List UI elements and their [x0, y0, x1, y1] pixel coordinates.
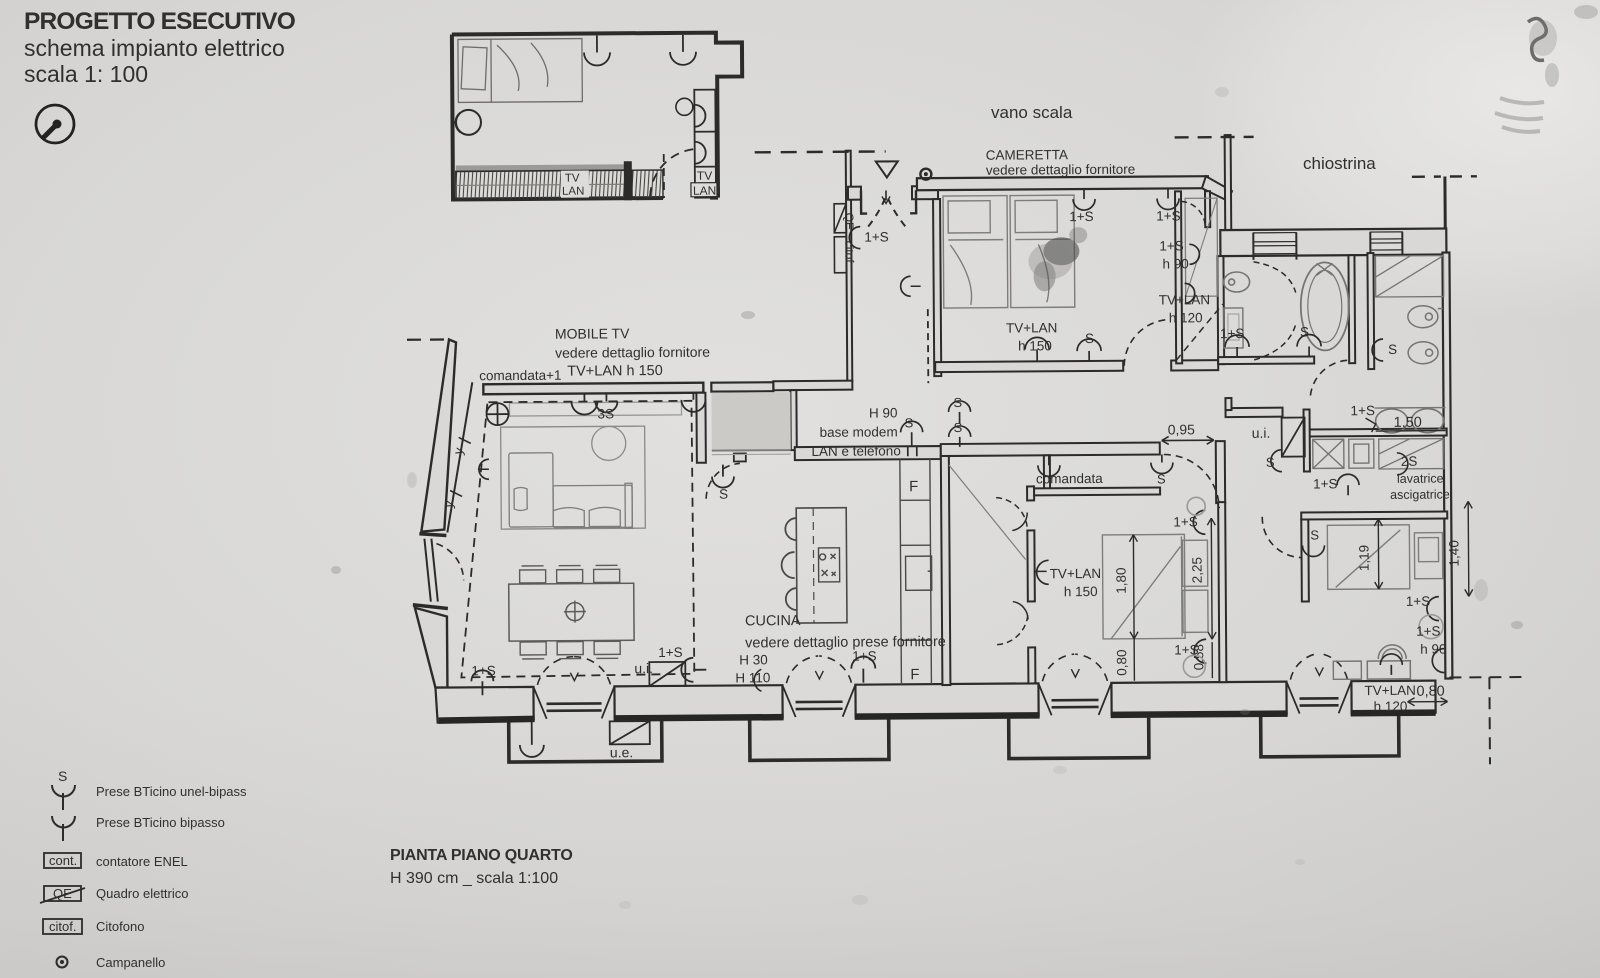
svg-text:u.e.: u.e.	[610, 744, 633, 760]
svg-text:H 390 cm _ scala 1:100: H 390 cm _ scala 1:100	[390, 870, 558, 887]
svg-text:1,50: 1,50	[1394, 415, 1422, 431]
svg-text:TV: TV	[565, 173, 580, 185]
svg-text:F: F	[909, 478, 918, 495]
svg-text:contatore ENEL: contatore ENEL	[96, 854, 188, 869]
svg-text:0,80: 0,80	[1416, 684, 1444, 700]
svg-text:1,19: 1,19	[1356, 545, 1371, 571]
svg-text:vedere dettaglio prese fornito: vedere dettaglio prese fornitore	[745, 634, 946, 651]
svg-text:h 90: h 90	[1162, 256, 1188, 271]
svg-text:S: S	[1266, 455, 1275, 470]
svg-text:PIANTA PIANO QUARTO: PIANTA PIANO QUARTO	[390, 847, 573, 864]
svg-text:h 120: h 120	[1374, 699, 1408, 714]
svg-text:3S: 3S	[597, 406, 614, 421]
svg-text:H 110: H 110	[735, 670, 770, 685]
svg-text:TV+LAN: TV+LAN	[1050, 566, 1102, 581]
svg-text:vedere dettaglio fornitore: vedere dettaglio fornitore	[555, 344, 710, 361]
svg-text:TV: TV	[697, 169, 712, 183]
svg-text:S: S	[1388, 342, 1397, 357]
svg-text:1+S: 1+S	[1159, 238, 1184, 253]
svg-text:1+S: 1+S	[1416, 624, 1441, 639]
svg-text:1,40: 1,40	[1446, 540, 1461, 566]
svg-text:2S: 2S	[1401, 454, 1418, 469]
svg-text:1+S: 1+S	[864, 229, 889, 244]
svg-text:S: S	[954, 420, 963, 435]
svg-text:1+S: 1+S	[1350, 403, 1375, 418]
svg-text:TV+LAN h 150: TV+LAN h 150	[567, 363, 663, 380]
svg-text:S: S	[1157, 471, 1166, 486]
svg-text:vano scala: vano scala	[991, 103, 1073, 122]
svg-text:S: S	[953, 395, 962, 410]
svg-text:S: S	[719, 487, 728, 502]
svg-text:h 120: h 120	[1169, 310, 1203, 325]
svg-text:h 150: h 150	[1064, 584, 1098, 599]
svg-text:CUCINA: CUCINA	[745, 613, 801, 629]
svg-text:S: S	[905, 415, 914, 430]
svg-text:cont.: cont.	[49, 853, 77, 868]
svg-text:h 150: h 150	[1018, 338, 1052, 353]
svg-text:1+S: 1+S	[1220, 326, 1245, 341]
svg-text:chiostrina: chiostrina	[1303, 154, 1376, 173]
svg-text:vedere dettaglio fornitore: vedere dettaglio fornitore	[986, 162, 1135, 178]
svg-text:citof.: citof.	[842, 241, 856, 266]
svg-text:Prese BTicino bipasso: Prese BTicino bipasso	[96, 815, 225, 830]
svg-text:TV+LAN: TV+LAN	[1364, 683, 1416, 698]
svg-text:S: S	[58, 768, 67, 784]
svg-text:schema impianto elettrico: schema impianto elettrico	[24, 35, 285, 61]
svg-text:base modem: base modem	[820, 424, 898, 440]
svg-text:PROGETTO ESECUTIVO: PROGETTO ESECUTIVO	[24, 8, 296, 35]
svg-text:0,95: 0,95	[1168, 421, 1196, 437]
svg-text:ascigatrice: ascigatrice	[1390, 488, 1450, 502]
svg-text:Quadro elettrico: Quadro elettrico	[96, 886, 189, 901]
svg-text:1+S: 1+S	[1156, 208, 1181, 223]
svg-text:1+S: 1+S	[1313, 476, 1338, 491]
svg-text:Prese BTicino unel-bipass: Prese BTicino unel-bipass	[96, 784, 247, 799]
svg-text:TV+LAN: TV+LAN	[1006, 320, 1058, 335]
svg-text:lavatrice: lavatrice	[1397, 472, 1444, 486]
svg-text:Citofono: Citofono	[96, 919, 144, 934]
svg-text:F: F	[910, 666, 919, 683]
svg-text:comandata+1: comandata+1	[479, 368, 561, 384]
svg-text:LAN: LAN	[562, 186, 584, 198]
svg-text:1+S: 1+S	[1069, 209, 1094, 224]
svg-text:H 90: H 90	[869, 405, 898, 420]
svg-text:0,80: 0,80	[1114, 649, 1129, 675]
svg-text:LAN: LAN	[693, 184, 716, 198]
svg-text:citof.: citof.	[49, 919, 76, 934]
svg-text:S: S	[1310, 527, 1319, 542]
svg-text:TV+LAN: TV+LAN	[1159, 292, 1211, 307]
svg-text:LAN e telefono: LAN e telefono	[811, 443, 900, 459]
svg-text:H 30: H 30	[739, 652, 768, 667]
svg-text:CAMERETTA: CAMERETTA	[986, 147, 1068, 163]
svg-text:1+S: 1+S	[658, 645, 683, 660]
svg-text:MOBILE TV: MOBILE TV	[555, 325, 630, 342]
svg-text:u.i.: u.i.	[1252, 425, 1271, 441]
svg-text:1,80: 1,80	[1114, 567, 1129, 593]
svg-text:scala 1: 100: scala 1: 100	[24, 61, 148, 87]
svg-text:comandata: comandata	[1036, 471, 1103, 486]
svg-text:Campanello: Campanello	[96, 955, 165, 970]
svg-text:2,25: 2,25	[1190, 557, 1205, 583]
